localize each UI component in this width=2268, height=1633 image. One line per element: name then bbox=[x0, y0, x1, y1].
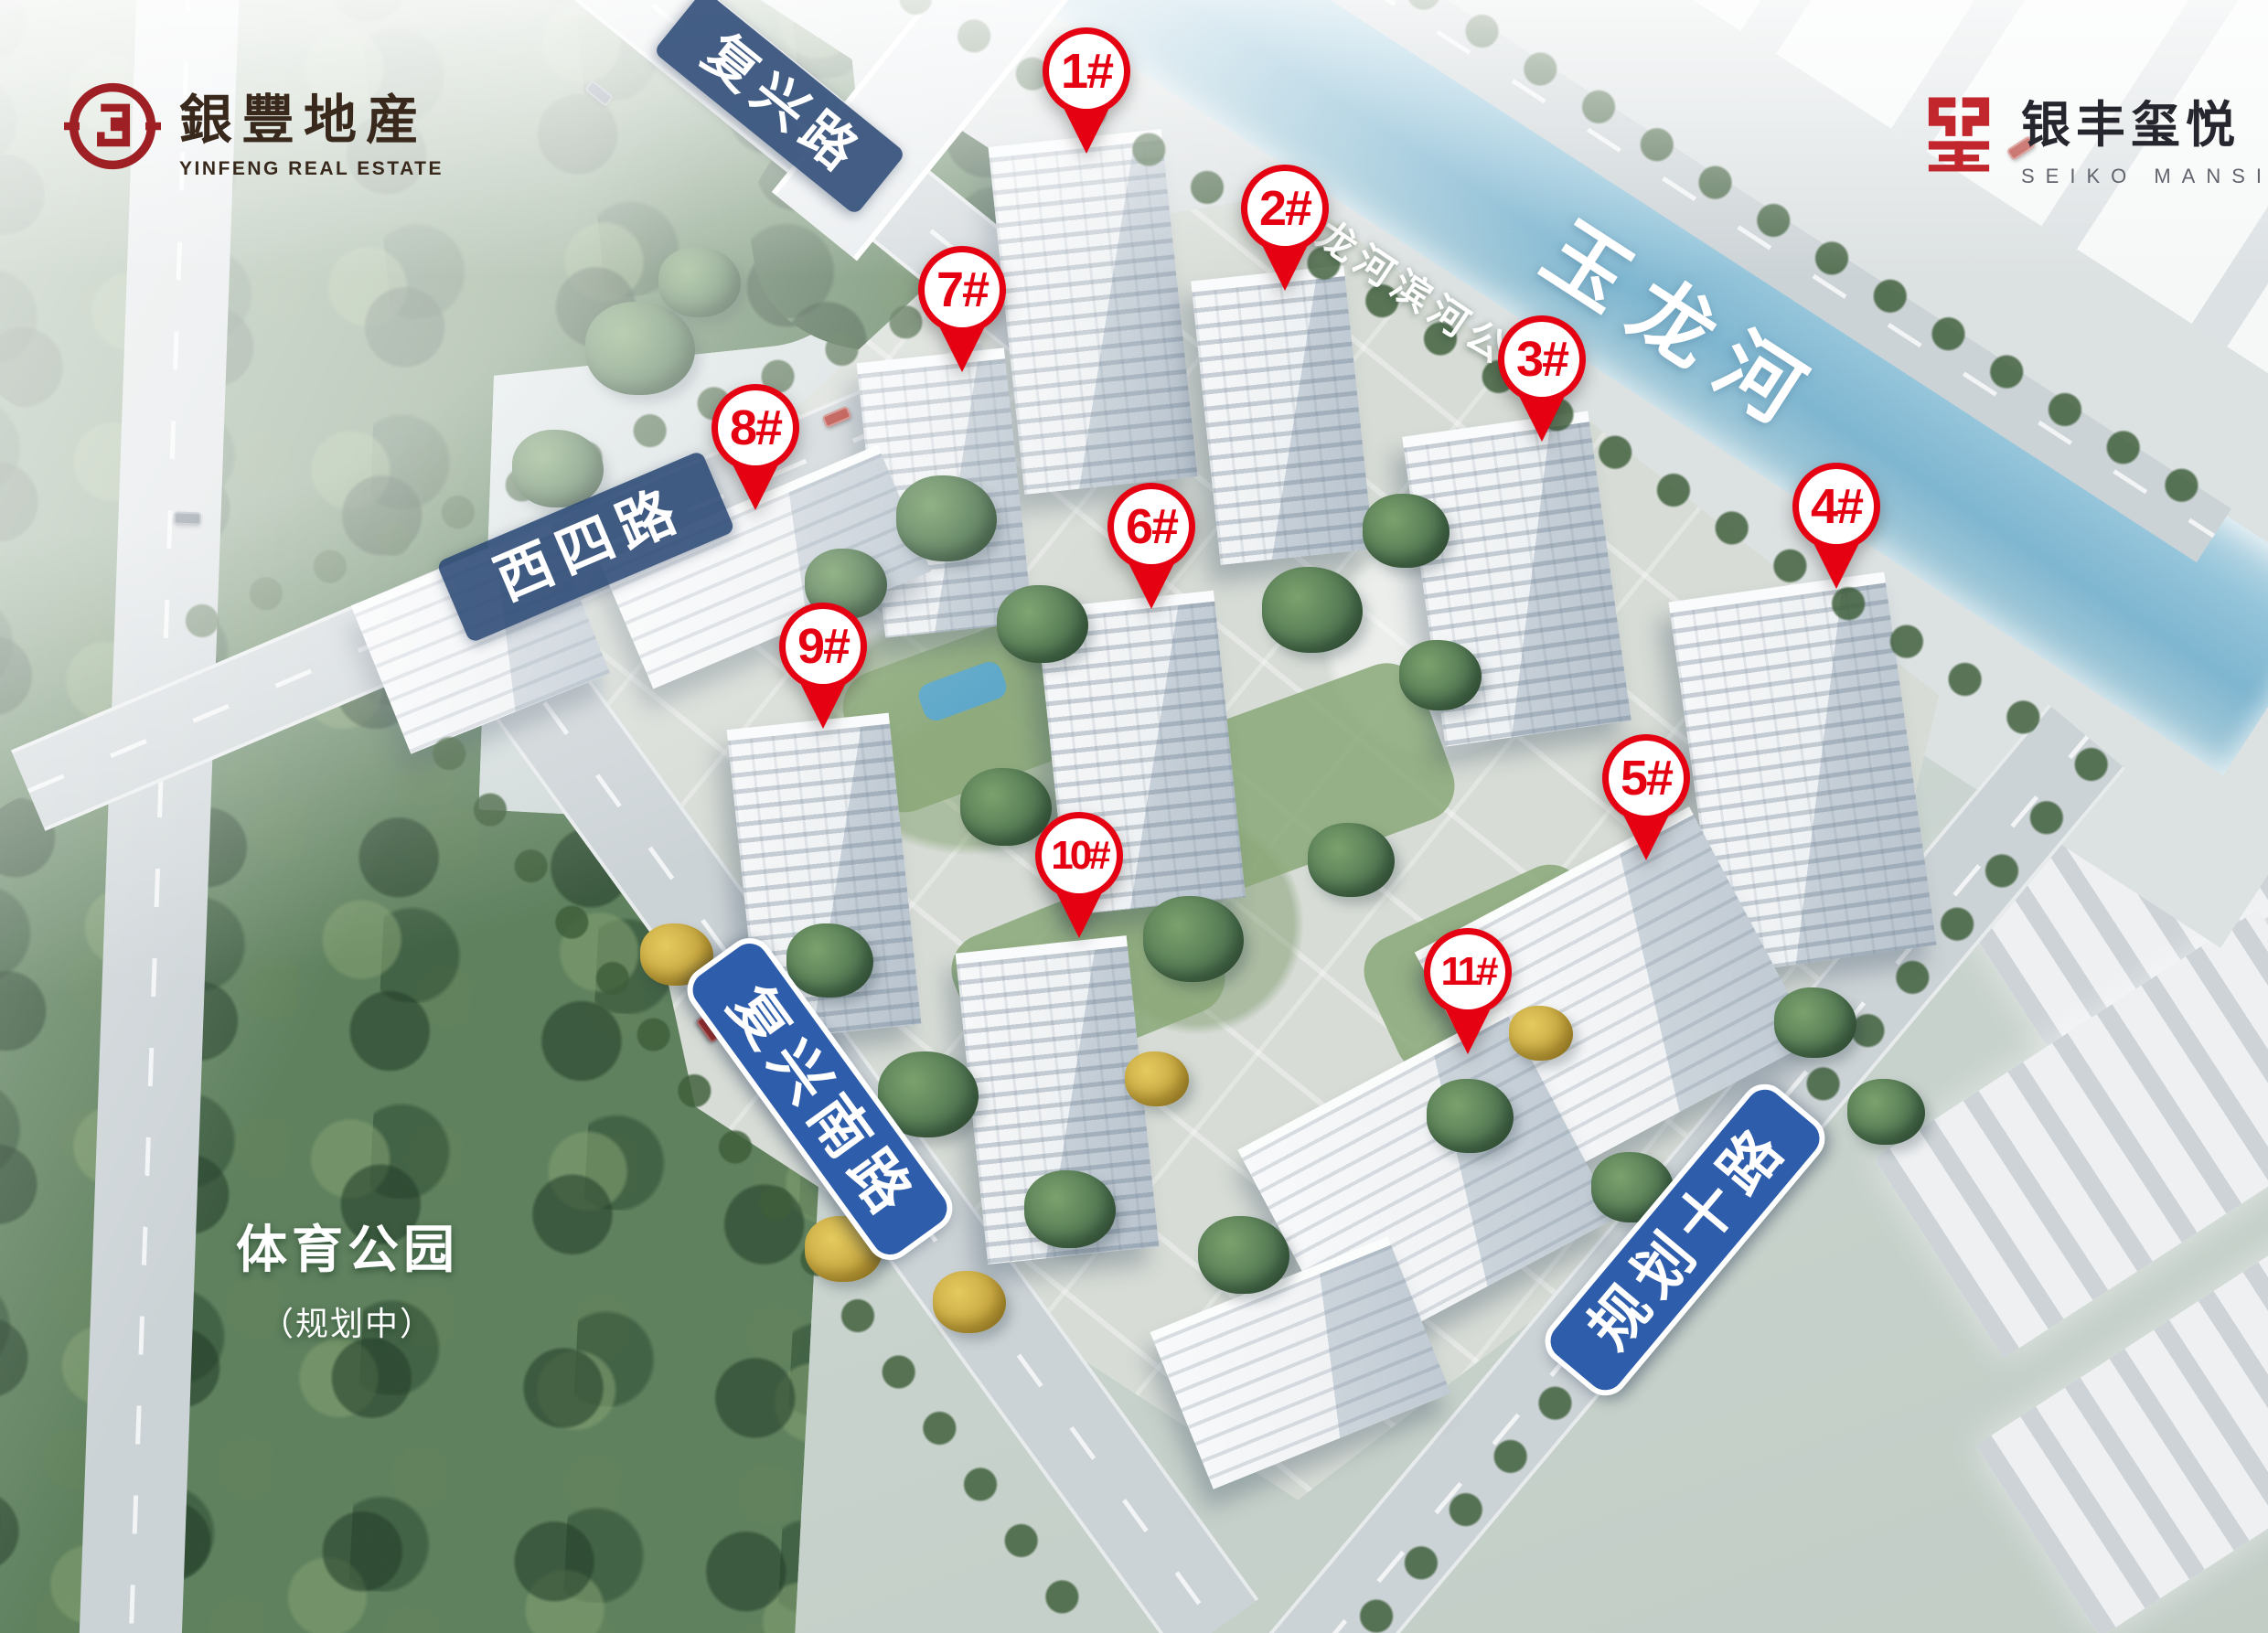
tree bbox=[585, 302, 695, 395]
marker-balloon: 2# bbox=[1241, 165, 1329, 252]
tree bbox=[1262, 567, 1363, 653]
marker-balloon: 5# bbox=[1602, 734, 1690, 822]
tree bbox=[1308, 823, 1395, 897]
building-marker-7[interactable]: 7# bbox=[918, 246, 1006, 379]
building-marker-6[interactable]: 6# bbox=[1107, 483, 1195, 616]
building-marker-10[interactable]: 10# bbox=[1035, 812, 1123, 945]
building-marker-1[interactable]: 1# bbox=[1043, 27, 1130, 161]
tree bbox=[1847, 1079, 1925, 1145]
tree bbox=[786, 923, 873, 998]
tree bbox=[997, 585, 1088, 663]
marker-number: 10# bbox=[1051, 833, 1107, 879]
yinfeng-name-en: YINFENG REAL ESTATE bbox=[179, 158, 444, 180]
tree bbox=[1024, 1170, 1116, 1248]
marker-number: 6# bbox=[1126, 498, 1177, 555]
tree bbox=[1774, 987, 1856, 1058]
marker-balloon: 10# bbox=[1035, 812, 1123, 900]
seiko-mansion-name-en: SEIKO MANSION bbox=[2021, 165, 2268, 188]
tree bbox=[1509, 1006, 1573, 1061]
sports-park-status: （规划中） bbox=[197, 1297, 498, 1345]
building-marker-11[interactable]: 11# bbox=[1424, 928, 1512, 1062]
tree bbox=[1427, 1079, 1514, 1153]
tree bbox=[1363, 494, 1450, 568]
marker-balloon: 4# bbox=[1792, 463, 1880, 550]
marker-number: 11# bbox=[1441, 949, 1495, 995]
marker-balloon: 11# bbox=[1424, 928, 1512, 1016]
seiko-mansion-logo-icon bbox=[1917, 92, 2001, 181]
marker-balloon: 1# bbox=[1043, 27, 1130, 115]
sports-park-label: 体育公园 （规划中） bbox=[197, 1209, 498, 1345]
marker-number: 7# bbox=[936, 261, 988, 318]
tree bbox=[1198, 1216, 1289, 1294]
marker-number: 9# bbox=[797, 618, 849, 675]
tree bbox=[512, 430, 604, 507]
seiko-mansion-brand: 银丰玺悦 SEIKO MANSION bbox=[1917, 84, 2268, 188]
marker-balloon: 9# bbox=[779, 603, 867, 690]
tree bbox=[658, 247, 741, 317]
tree bbox=[933, 1271, 1006, 1333]
site-plan: 玉龙河 玉龙河滨河公园 体育公园 （规划中） 銀豐地産 YINFENG REAL… bbox=[0, 0, 2268, 1633]
marker-number: 4# bbox=[1811, 478, 1862, 535]
building-marker-8[interactable]: 8# bbox=[711, 384, 799, 518]
tree bbox=[1399, 640, 1482, 710]
car bbox=[174, 511, 201, 525]
sports-park-title: 体育公园 bbox=[197, 1209, 498, 1283]
building-marker-9[interactable]: 9# bbox=[779, 603, 867, 736]
building-marker-3[interactable]: 3# bbox=[1498, 315, 1586, 449]
marker-number: 3# bbox=[1516, 331, 1567, 388]
marker-number: 5# bbox=[1621, 750, 1672, 806]
tree bbox=[896, 475, 997, 561]
marker-balloon: 6# bbox=[1107, 483, 1195, 571]
building-marker-4[interactable]: 4# bbox=[1792, 463, 1880, 596]
tree bbox=[1143, 896, 1244, 982]
marker-balloon: 8# bbox=[711, 384, 799, 472]
yinfeng-seal-icon bbox=[64, 78, 161, 179]
marker-balloon: 3# bbox=[1498, 315, 1586, 403]
tree bbox=[1125, 1051, 1189, 1106]
marker-number: 8# bbox=[730, 400, 781, 456]
marker-balloon: 7# bbox=[918, 246, 1006, 334]
building-marker-5[interactable]: 5# bbox=[1602, 734, 1690, 868]
seiko-mansion-name-cn: 银丰玺悦 bbox=[2021, 84, 2268, 156]
yinfeng-name-cn: 銀豐地産 bbox=[179, 77, 444, 154]
marker-number: 2# bbox=[1259, 180, 1311, 237]
yinfeng-brand: 銀豐地産 YINFENG REAL ESTATE bbox=[64, 77, 444, 180]
building-marker-2[interactable]: 2# bbox=[1241, 165, 1329, 298]
marker-number: 1# bbox=[1061, 43, 1112, 100]
